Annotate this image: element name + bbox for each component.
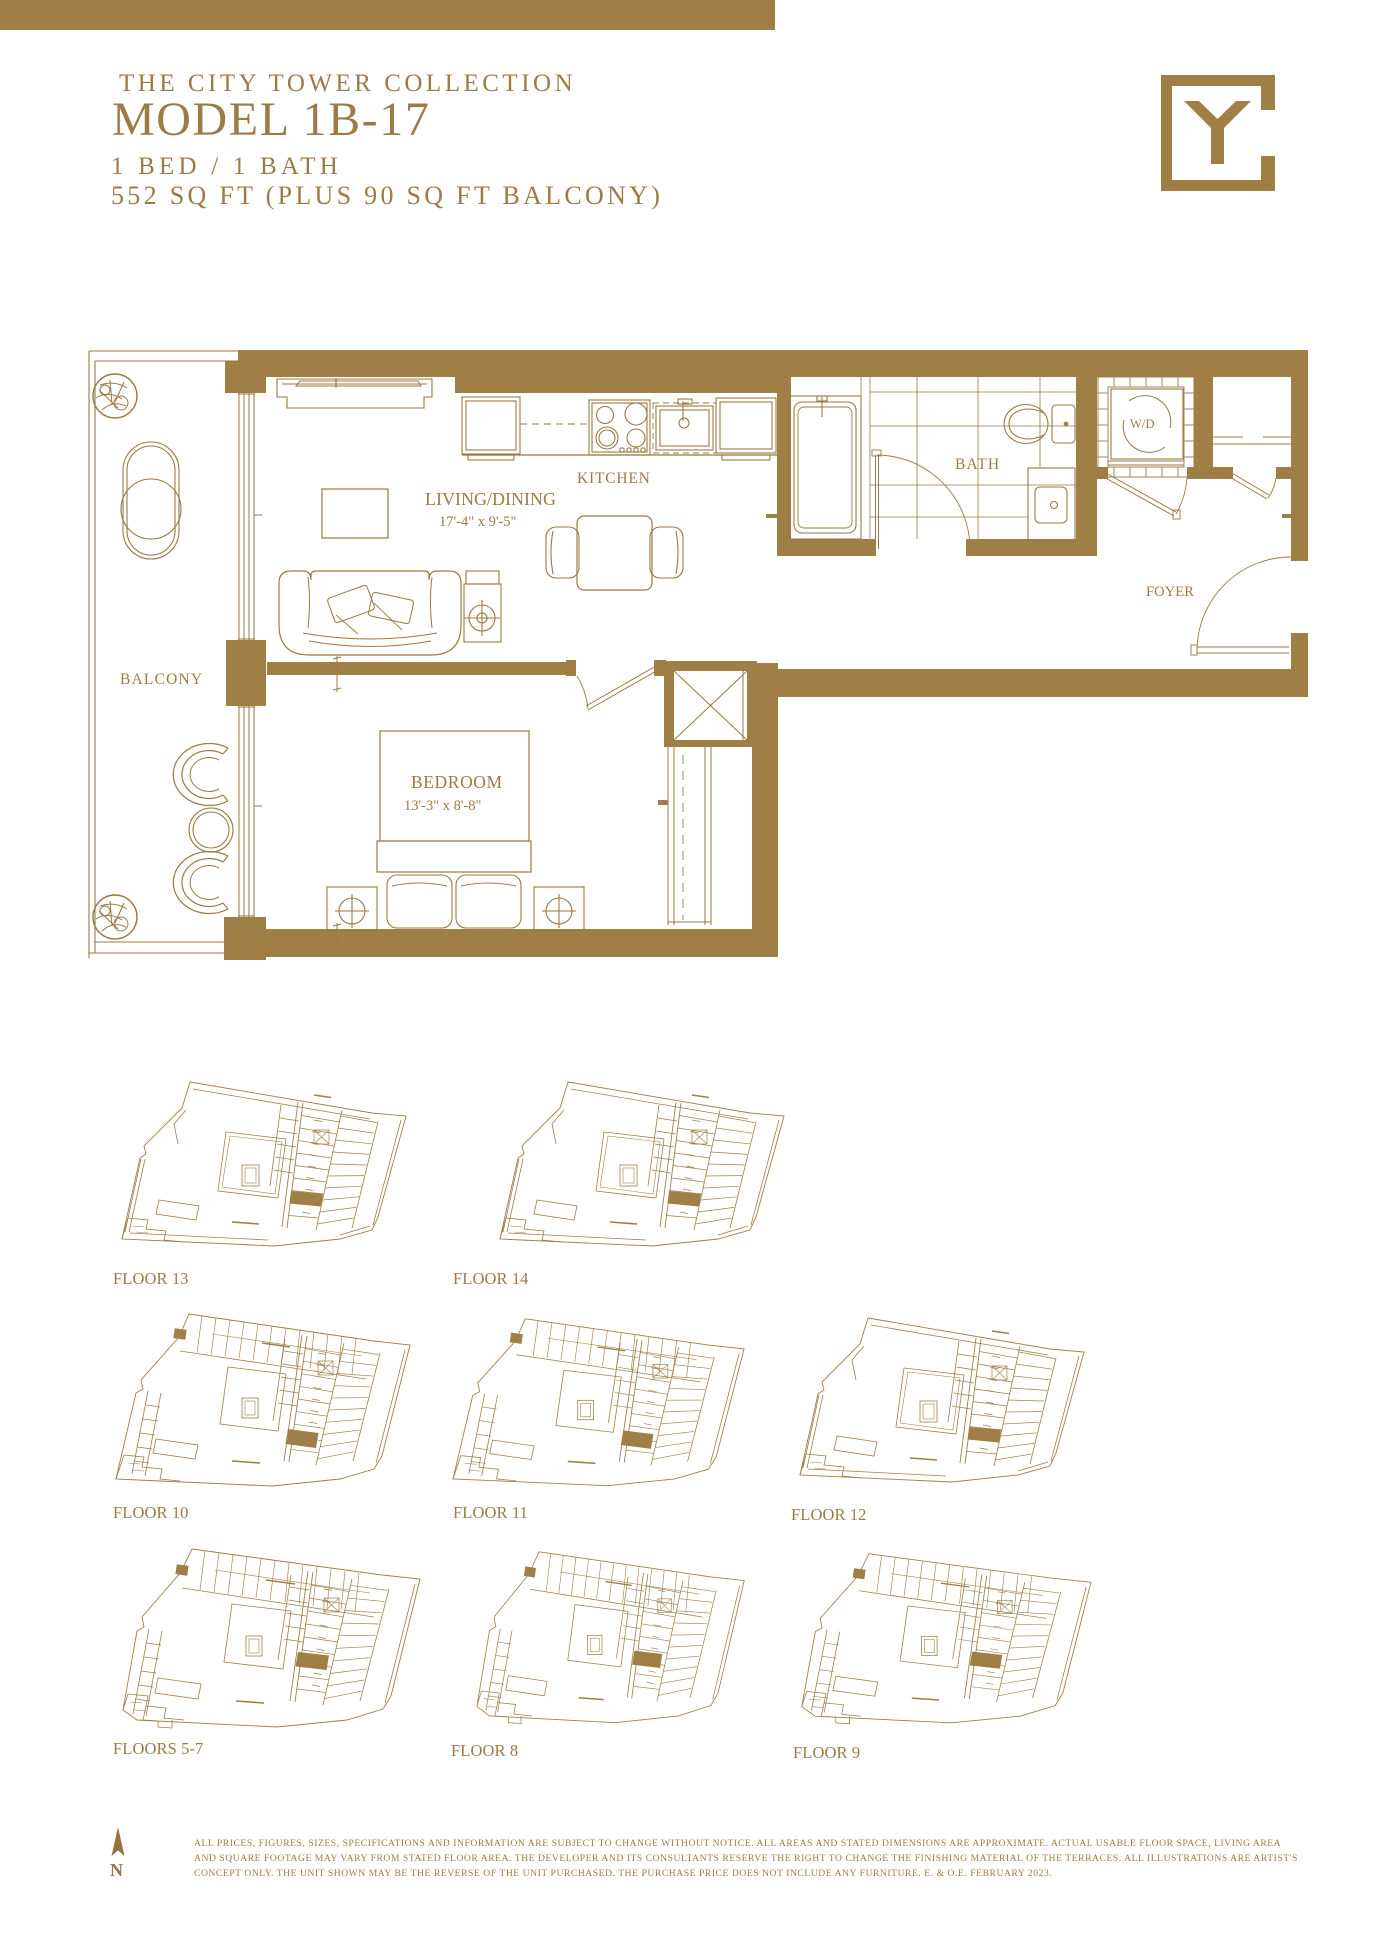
svg-text:BALCONY: BALCONY [120,671,203,688]
svg-text:W/D: W/D [1130,417,1155,431]
svg-text:FOYER: FOYER [1146,584,1194,600]
svg-text:LIVING/DINING: LIVING/DINING [425,489,556,509]
svg-text:BEDROOM: BEDROOM [411,772,503,792]
svg-text:BATH: BATH [955,456,1000,473]
svg-text:KITCHEN: KITCHEN [577,470,651,487]
svg-text:13'-3" x 8'-8": 13'-3" x 8'-8" [404,798,482,814]
svg-text:17'-4" x 9'-5": 17'-4" x 9'-5" [439,514,517,530]
